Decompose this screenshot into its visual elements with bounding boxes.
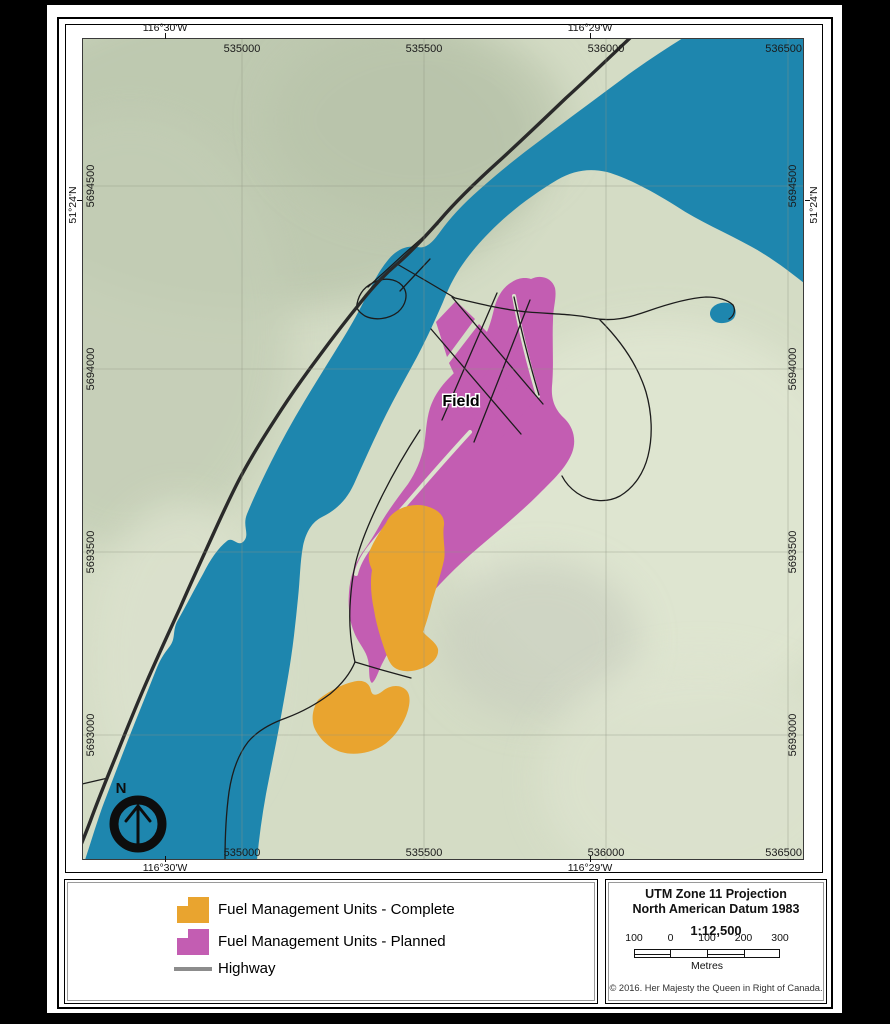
place-label-field: Field (442, 393, 479, 410)
svg-text:536500: 536500 (765, 847, 802, 859)
svg-text:5694000: 5694000 (787, 348, 799, 391)
lat-label-right: 51°24'N (808, 186, 820, 223)
map-document: 535000 535500 536000 536500 535000 53550… (0, 0, 890, 1024)
svg-text:5693500: 5693500 (85, 531, 97, 574)
scale-units-label: Metres (691, 960, 723, 972)
svg-text:5693000: 5693000 (787, 714, 799, 757)
svg-text:5693500: 5693500 (787, 531, 799, 574)
svg-text:5694500: 5694500 (787, 165, 799, 208)
tick (805, 200, 810, 201)
legend-swatch-planned (176, 928, 210, 956)
lon-label-bottom-left: 116°30'W (143, 862, 188, 874)
map-canvas[interactable]: 535000 535500 536000 536500 535000 53550… (82, 38, 804, 860)
svg-text:535000: 535000 (224, 43, 261, 55)
north-arrow-label: N (116, 780, 127, 797)
legend-label-highway: Highway (218, 960, 276, 977)
svg-text:5693000: 5693000 (85, 714, 97, 757)
scale-bar-label: 100 (698, 932, 716, 944)
svg-text:536000: 536000 (588, 847, 625, 859)
legend-label-planned: Fuel Management Units - Planned (218, 933, 446, 950)
tick (590, 33, 591, 39)
scale-bar: 100 0 100 200 300 Metres (634, 946, 780, 986)
lat-label-left: 51°24'N (67, 186, 79, 223)
legend-swatch-complete (176, 896, 210, 924)
projection-line2: North American Datum 1983 (606, 902, 826, 917)
tick (77, 200, 82, 201)
tick (165, 33, 166, 39)
map-info-panel: UTM Zone 11 Projection North American Da… (605, 879, 827, 1004)
svg-text:5694000: 5694000 (85, 348, 97, 391)
scale-bar-label: 200 (735, 932, 753, 944)
copyright-text: © 2016. Her Majesty the Queen in Right o… (606, 983, 826, 993)
scale-bar-label: 300 (771, 932, 789, 944)
svg-text:535000: 535000 (224, 847, 261, 859)
lon-label-bottom-right: 116°29'W (568, 862, 613, 874)
scale-bar-label: 100 (625, 932, 643, 944)
legend-swatch-highway (174, 967, 212, 971)
svg-text:535500: 535500 (406, 847, 443, 859)
projection-line1: UTM Zone 11 Projection (606, 887, 826, 902)
svg-text:5694500: 5694500 (85, 165, 97, 208)
svg-text:536000: 536000 (588, 43, 625, 55)
tick (590, 856, 591, 862)
legend-label-complete: Fuel Management Units - Complete (218, 901, 455, 918)
scale-bar-label: 0 (668, 932, 674, 944)
legend: Fuel Management Units - Complete Fuel Ma… (64, 879, 598, 1004)
svg-text:535500: 535500 (406, 43, 443, 55)
svg-text:536500: 536500 (765, 43, 802, 55)
tick (165, 856, 166, 862)
